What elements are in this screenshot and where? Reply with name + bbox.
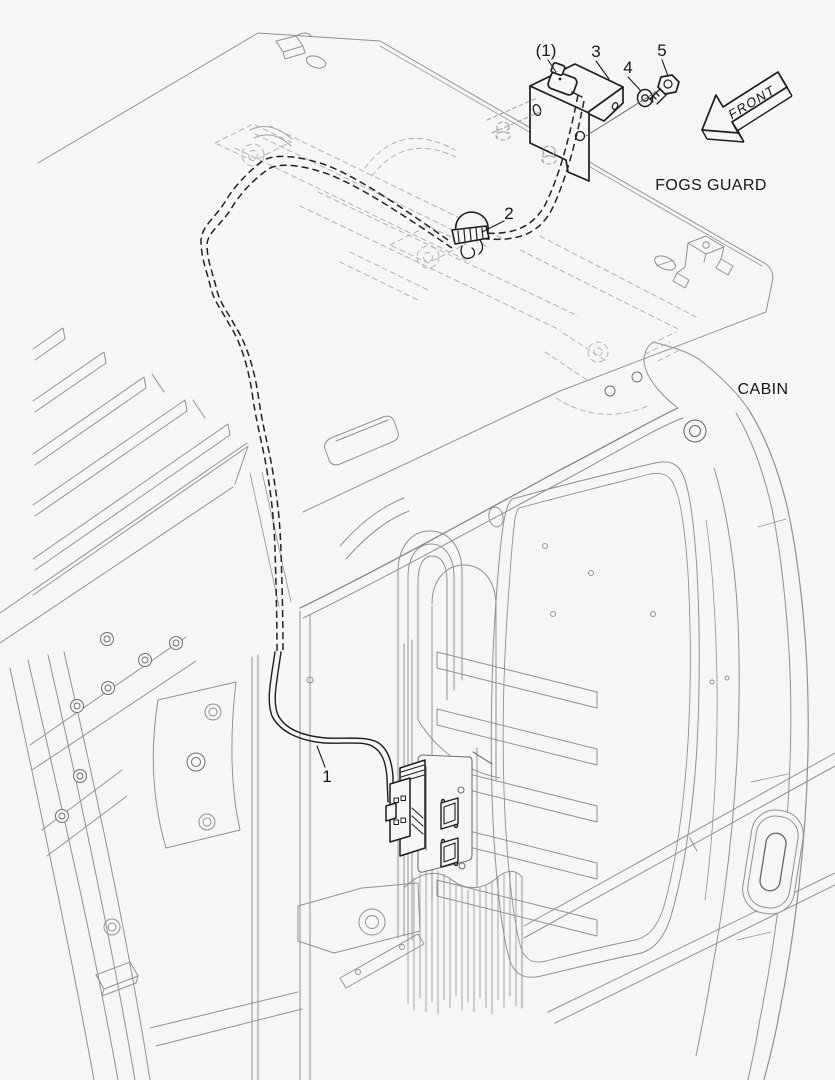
fogs-guard-label: FOGS GUARD [655, 177, 767, 195]
parts-diagram: (1) 3 4 5 2 1 FOGS GUARD CABIN FRONT [0, 0, 835, 1080]
cabin-shell [252, 342, 808, 1080]
callout-5-label: 5 [657, 41, 666, 61]
diagram-line-art [0, 0, 835, 1080]
callout-3-label: 3 [591, 42, 600, 62]
antenna-unit-part2 [452, 212, 489, 258]
callout-4-label: 4 [623, 58, 632, 78]
controller-body [386, 760, 425, 856]
antenna-bracket-assembly [530, 62, 679, 181]
controller-unit [386, 752, 492, 872]
hex-bolt-icon [56, 372, 643, 823]
guard-surface-details [250, 127, 292, 146]
cable-connector [386, 803, 396, 821]
cabin-label: CABIN [738, 381, 789, 399]
fogs-guard-panel [38, 33, 773, 512]
callout-1-paren-label: (1) [536, 41, 557, 61]
hidden-structure-dashed [215, 124, 698, 414]
callout-1-label: 1 [322, 767, 331, 787]
louver-slats [0, 328, 291, 643]
bolt-part5 [649, 75, 679, 104]
left-body-panel [10, 637, 240, 1080]
antenna-harness-dashed-route [201, 95, 584, 652]
callout-2-label: 2 [504, 204, 513, 224]
bolt-heads [56, 372, 643, 823]
